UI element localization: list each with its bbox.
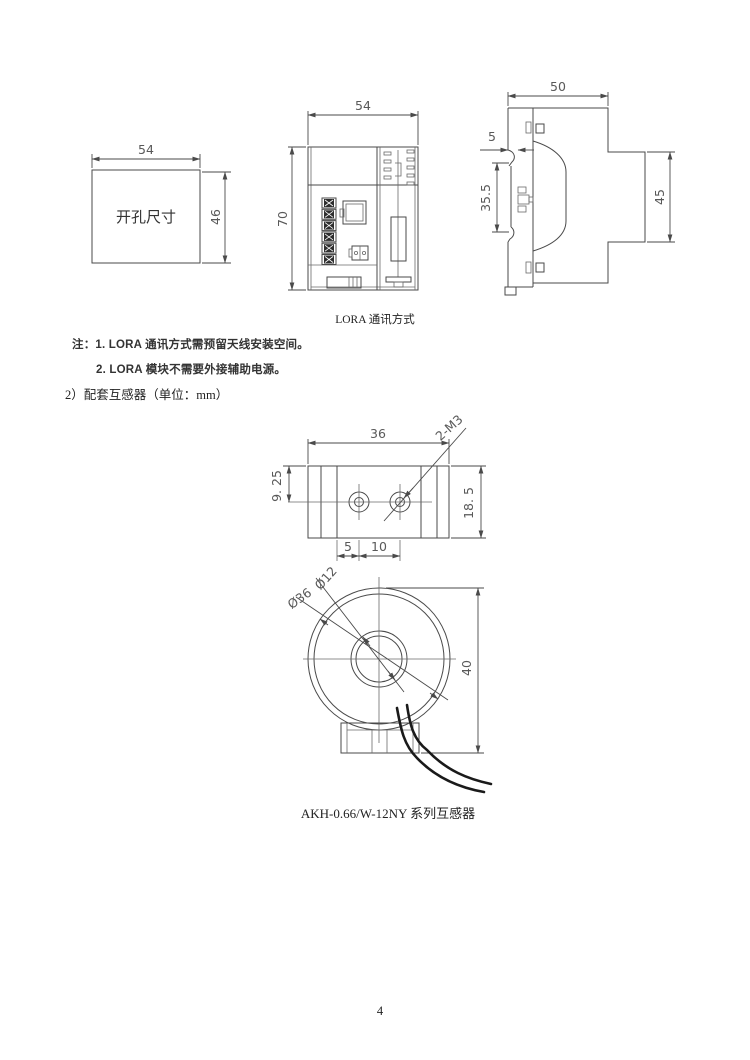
vent-slots [384,150,414,185]
terminal-2 [322,209,336,219]
cutout-height-dimension: 46 [202,172,231,263]
front-height-label: 70 [275,211,290,227]
cutout-width-dimension: 54 [92,142,200,168]
outer-diameter-label: Ø36 [285,585,315,612]
mounting-holes [288,484,432,561]
document-page: 54 46 开孔尺寸 [0,0,750,1060]
cutout-height-label: 46 [208,209,223,225]
side-clip-label: 5 [488,129,496,144]
terminal-6 [322,255,336,265]
rail-lock-teeth [518,187,533,212]
side-width-dimension: 50 [508,79,608,106]
side-rail-dimension: 35.5 [478,163,509,232]
ct-width-dimension: 36 [308,426,449,464]
thread-label: 2-M3 [432,412,465,444]
ct-offset-dimension: 9. 25 [269,466,306,502]
terminal-3 [322,221,336,231]
transformer-figure-caption: AKH-0.66/W-12NY 系列互感器 [288,803,488,822]
lead-wires [397,705,491,792]
rj45-port [340,201,366,224]
device-side-view: 50 5 35.5 45 [478,79,675,295]
device-front-view: 54 70 [275,98,418,290]
side-rail-label: 35.5 [478,184,493,212]
case-profile-curve [533,141,566,251]
ct-overall-height-label: 40 [459,660,474,676]
inner-diameter-label: Ø12 [311,563,339,592]
cutout-drawing: 54 46 开孔尺寸 [92,142,231,263]
transformer-top-view: 36 9. 25 18. 5 5 10 2-M3 [269,412,486,561]
terminal-1 [322,198,336,208]
side-width-label: 50 [550,79,566,94]
aux-connector [349,246,368,260]
ct-spacing-a-label: 5 [344,539,352,554]
page-number: 4 [355,1004,405,1019]
lora-figure-caption: LORA 通讯方式 [300,311,450,327]
technical-drawings-canvas: 54 46 开孔尺寸 [0,0,750,1060]
section-heading: 2）配套互感器（单位：mm） [65,384,228,403]
transformer-front-view: Ø36 Ø12 40 [285,563,491,792]
ct-width-label: 36 [370,426,386,441]
terminal-5 [322,243,336,253]
side-depth-dimension: 45 [647,152,675,242]
cutout-width-label: 54 [138,142,154,157]
din-clip-front [327,277,361,288]
antenna [386,150,411,287]
ct-hole-spacing-dimensions: 5 10 [337,539,400,556]
side-depth-label: 45 [652,189,667,205]
ct-spacing-b-label: 10 [371,539,387,554]
inner-diameter-callout: Ø12 [311,563,404,692]
terminal-blocks [322,198,336,265]
front-width-dimension: 54 [308,98,418,145]
side-outline [508,108,645,283]
front-height-dimension: 70 [275,147,306,290]
ct-base [341,723,419,753]
note-line-2: 2. LORA 模块不需要外接辅助电源。 [96,361,286,377]
ct-offset-label: 9. 25 [269,470,284,502]
front-width-label: 54 [355,98,371,113]
ct-height-label: 18. 5 [461,487,476,519]
ct-height-dimension: 18. 5 [451,466,486,538]
cutout-text-label: 开孔尺寸 [116,209,176,226]
outer-diameter-callout: Ø36 [285,585,448,700]
note-line-1: 注：1. LORA 通讯方式需预留天线安装空间。 [72,336,309,352]
terminal-4 [322,232,336,242]
